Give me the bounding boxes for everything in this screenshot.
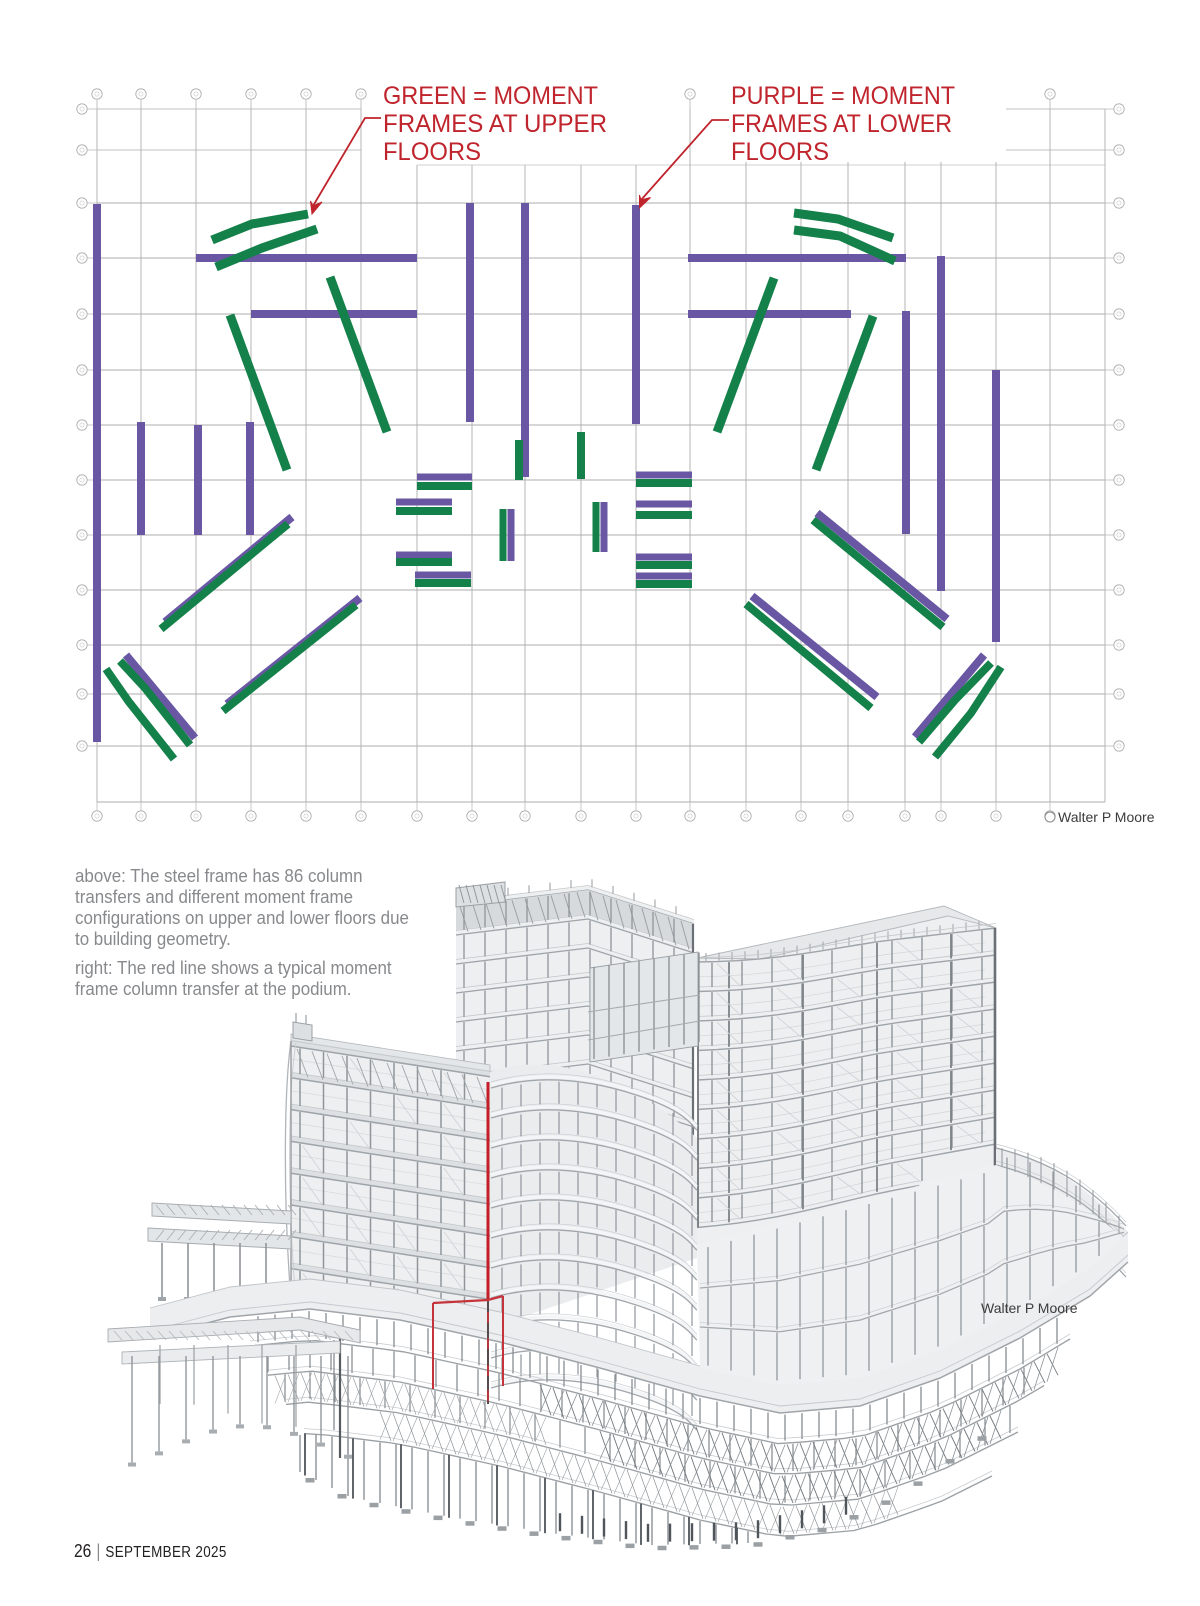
svg-text:Walter P Moore: Walter P Moore [1058, 809, 1155, 825]
svg-text:FLOORS: FLOORS [731, 138, 829, 166]
svg-text:GREEN = MOMENT: GREEN = MOMENT [383, 82, 598, 110]
svg-text:FLOORS: FLOORS [383, 138, 481, 166]
svg-text:Walter P Moore: Walter P Moore [981, 1300, 1078, 1316]
svg-text:PURPLE = MOMENT: PURPLE = MOMENT [731, 82, 955, 110]
svg-text:FRAMES AT UPPER: FRAMES AT UPPER [383, 110, 607, 138]
svg-text:FRAMES AT LOWER: FRAMES AT LOWER [731, 110, 952, 138]
